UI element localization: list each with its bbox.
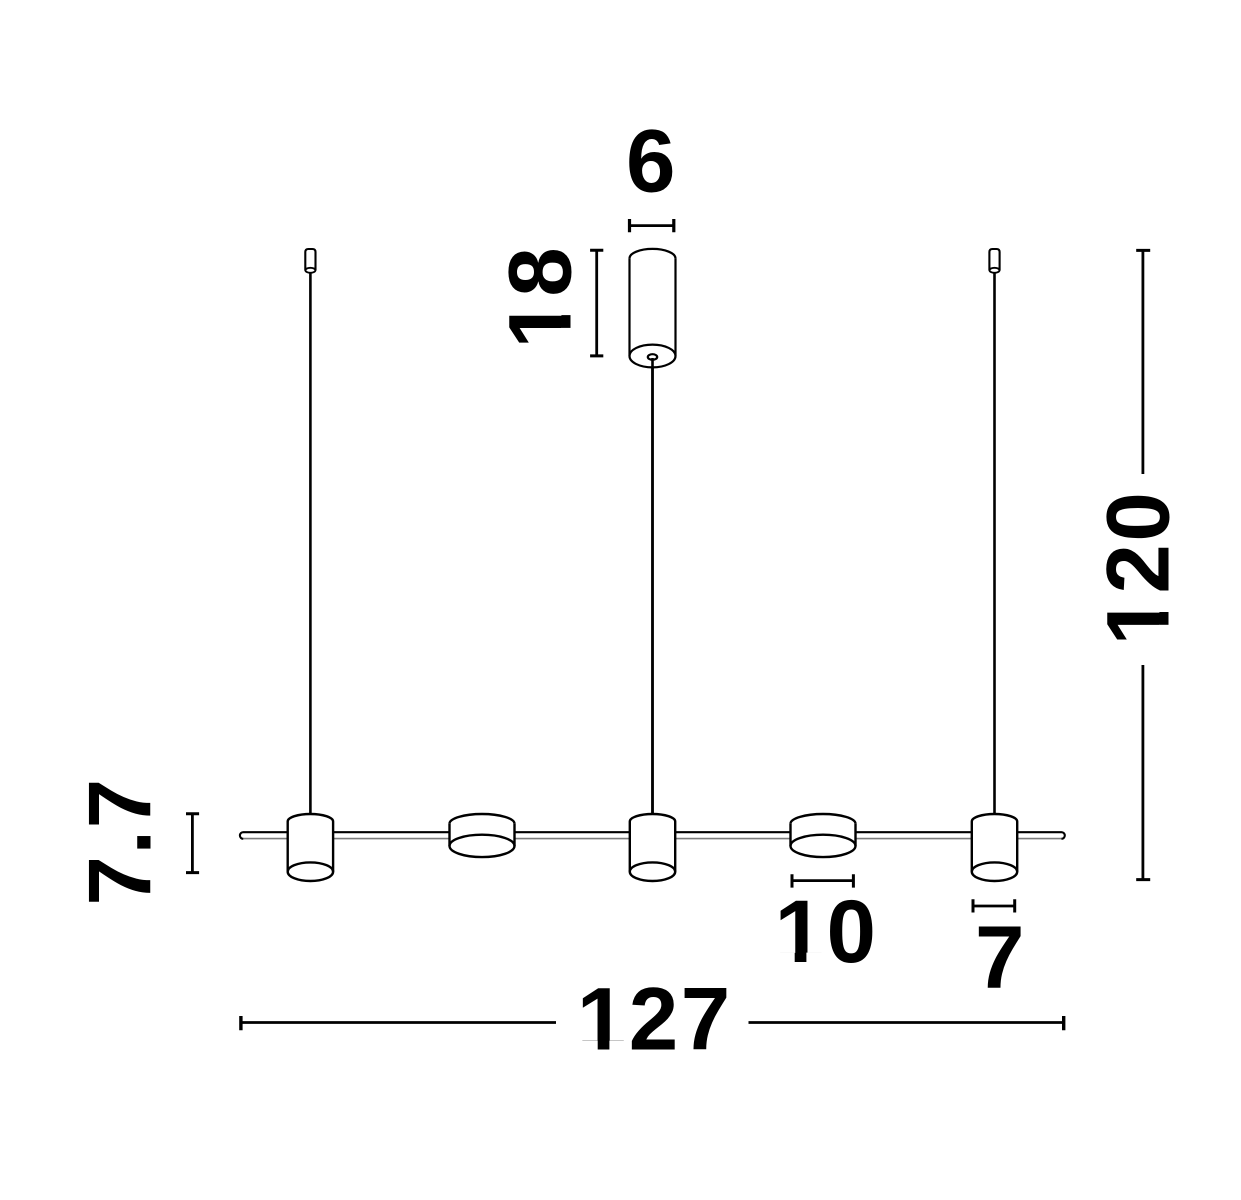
svg-text:7: 7	[975, 907, 1025, 1007]
svg-text:7.7: 7.7	[70, 777, 170, 905]
svg-text:10: 10	[775, 881, 879, 981]
svg-text:120: 120	[1088, 490, 1188, 646]
svg-text:18: 18	[490, 245, 590, 349]
svg-text:6: 6	[626, 111, 676, 211]
svg-text:127: 127	[577, 969, 733, 1069]
